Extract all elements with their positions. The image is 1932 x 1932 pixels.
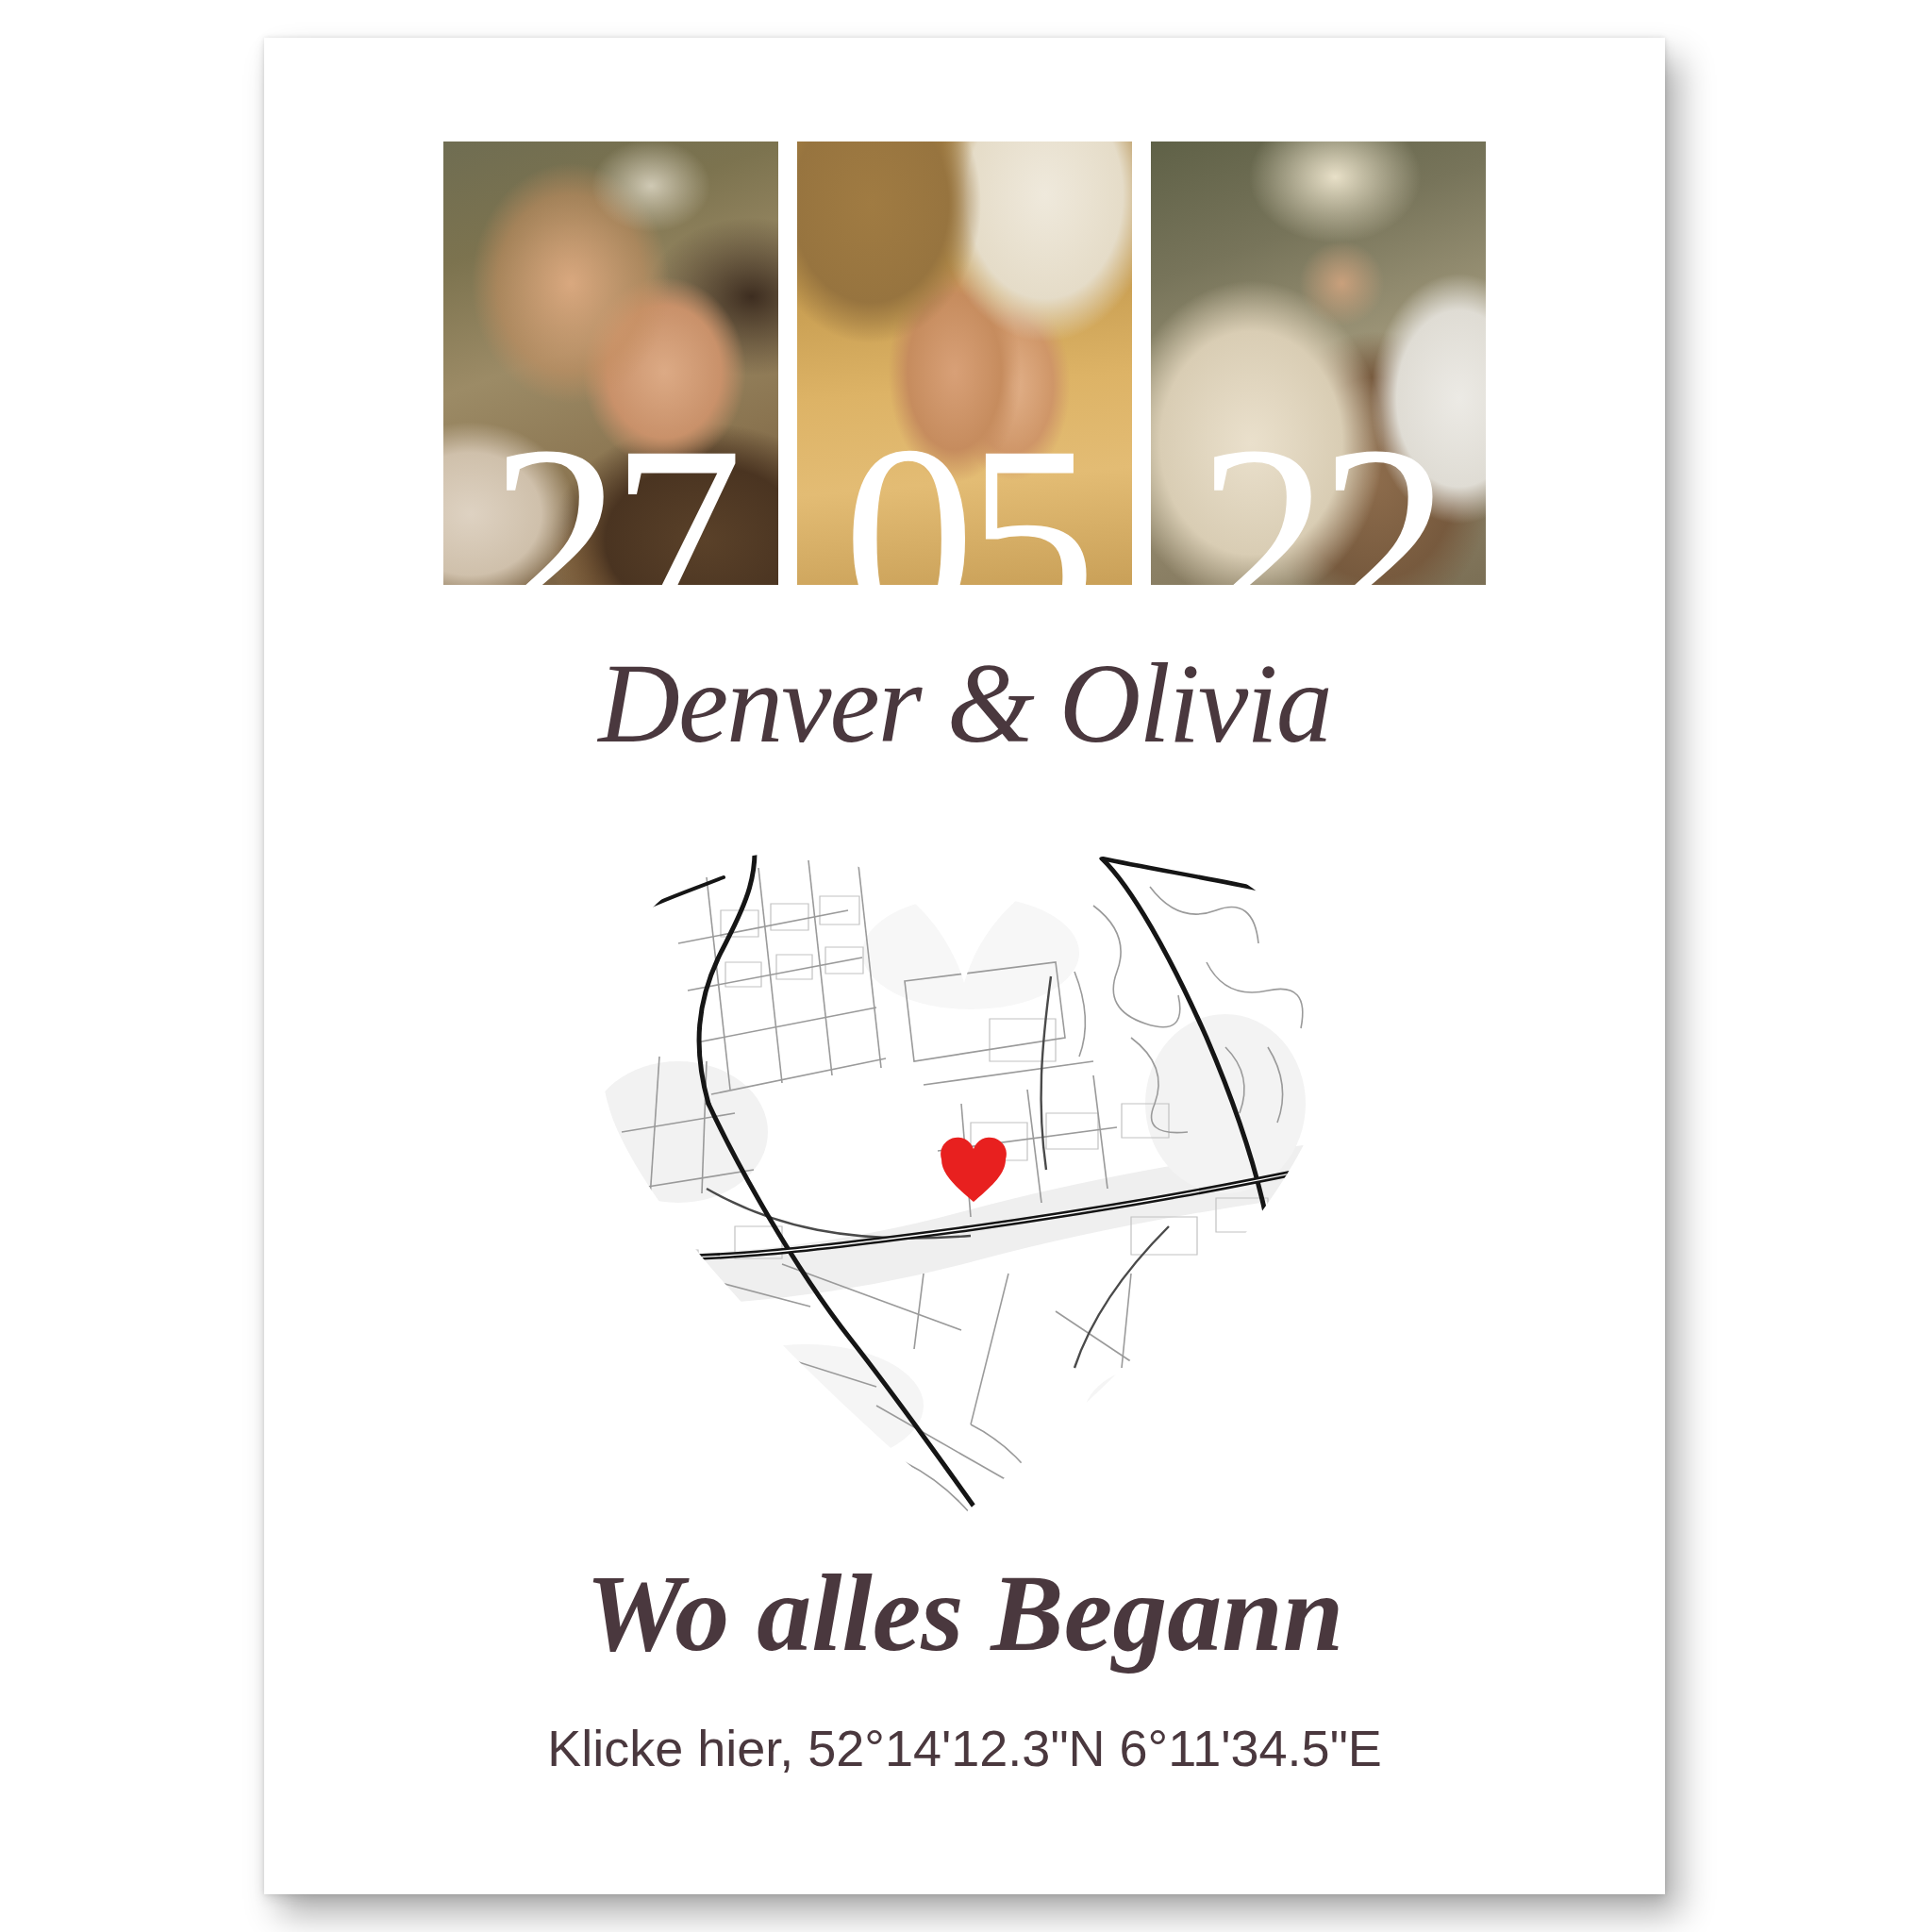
poster-title: Wo alles Begann bbox=[264, 1545, 1665, 1682]
heart-map bbox=[565, 821, 1363, 1528]
couple-names: Denver & Olivia bbox=[264, 630, 1665, 777]
photo-strip: 27 05 22 bbox=[443, 142, 1486, 585]
couple-nose-to-nose-photo: 27 bbox=[443, 142, 778, 585]
couple-embracing-by-fence-photo: 22 bbox=[1151, 142, 1486, 585]
pinky-promise-hands-photo: 05 bbox=[797, 142, 1132, 585]
heart-map-svg bbox=[565, 821, 1363, 1528]
date-month-number: 05 bbox=[797, 406, 1132, 585]
date-day-number: 27 bbox=[443, 406, 778, 585]
coordinates-text: Klicke hier, 52°14'12.3"N 6°11'34.5"E bbox=[264, 1719, 1665, 1777]
date-year-number: 22 bbox=[1151, 406, 1486, 585]
poster: 27 05 22 Denver & Olivia bbox=[264, 38, 1665, 1894]
